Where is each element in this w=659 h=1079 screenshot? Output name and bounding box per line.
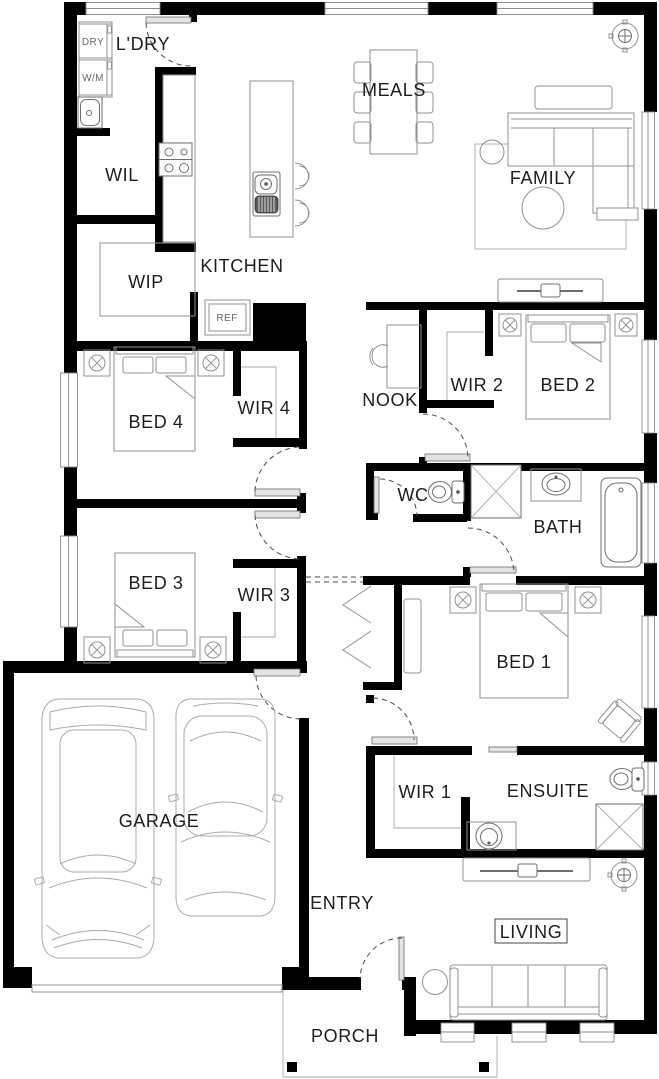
svg-text:LIVING: LIVING xyxy=(500,922,563,942)
svg-text:MEALS: MEALS xyxy=(362,80,426,100)
svg-text:ENSUITE: ENSUITE xyxy=(507,781,589,801)
svg-text:WC: WC xyxy=(397,485,428,505)
svg-text:WIR 3: WIR 3 xyxy=(237,585,290,605)
svg-text:L'DRY: L'DRY xyxy=(116,34,170,54)
svg-text:BED 1: BED 1 xyxy=(496,652,551,672)
svg-text:KITCHEN: KITCHEN xyxy=(200,256,283,276)
svg-text:BED 2: BED 2 xyxy=(540,375,595,395)
svg-text:GARAGE: GARAGE xyxy=(119,811,200,831)
svg-text:W/M: W/M xyxy=(82,73,104,84)
svg-text:DRY: DRY xyxy=(82,37,104,48)
svg-text:FAMILY: FAMILY xyxy=(510,168,576,188)
svg-text:REF: REF xyxy=(216,313,237,324)
svg-text:WIR 4: WIR 4 xyxy=(237,398,290,418)
svg-text:WIR 1: WIR 1 xyxy=(398,782,451,802)
svg-text:NOOK: NOOK xyxy=(362,390,417,410)
svg-text:WIL: WIL xyxy=(105,165,139,185)
svg-text:BED 4: BED 4 xyxy=(128,412,183,432)
svg-text:WIP: WIP xyxy=(128,272,164,292)
svg-text:WIR 2: WIR 2 xyxy=(450,375,503,395)
svg-text:ENTRY: ENTRY xyxy=(310,893,374,913)
svg-text:BATH: BATH xyxy=(533,517,582,537)
svg-text:BED 3: BED 3 xyxy=(128,573,183,593)
svg-text:PORCH: PORCH xyxy=(311,1026,379,1046)
